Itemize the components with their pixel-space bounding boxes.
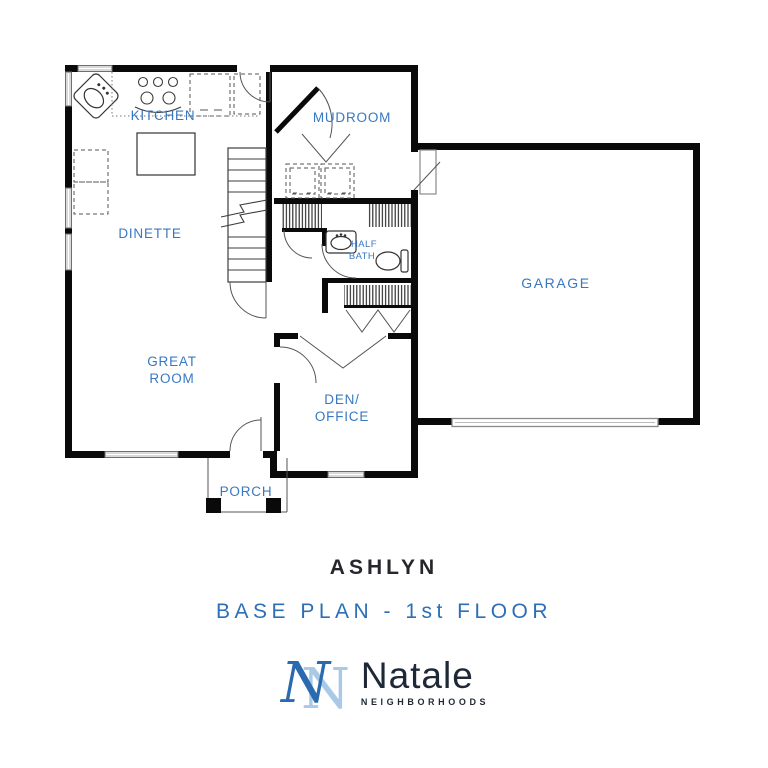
- monogram-dark-n: N: [279, 651, 332, 716]
- great-room-label-line2: ROOM: [149, 371, 194, 386]
- floor-plan: KITCHEN DINETTE MUDROOM HALF BATH GARAGE…: [0, 0, 768, 553]
- washer-dryer: [286, 164, 354, 198]
- brand-tagline: NEIGHBORHOODS: [361, 697, 489, 707]
- garage-door: [452, 419, 658, 427]
- dinette-label: DINETTE: [118, 226, 181, 241]
- logo-text: Natale NEIGHBORHOODS: [361, 657, 489, 707]
- half-bath-label-line2: BATH: [349, 251, 375, 262]
- den-office-label-line2: OFFICE: [315, 409, 369, 424]
- refrigerator: [190, 74, 230, 116]
- plan-name: ASHLYN: [0, 556, 768, 580]
- toilet: [376, 250, 408, 272]
- stairs: [221, 148, 267, 282]
- brand-logo: N N Natale NEIGHBORHOODS: [0, 644, 768, 720]
- brand-name: Natale: [361, 657, 489, 695]
- mudroom-label: MUDROOM: [313, 110, 391, 125]
- natale-monogram-icon: N N: [279, 644, 351, 720]
- great-room-label-line1: GREAT: [147, 354, 197, 369]
- kitchen-island: [137, 133, 195, 175]
- garage-label: GARAGE: [521, 275, 591, 291]
- half-bath-label-line1: HALF: [351, 239, 377, 250]
- pantry-shelf: [74, 150, 108, 182]
- exterior-walls: [65, 65, 700, 478]
- den-office-label-line1: DEN/: [324, 392, 359, 407]
- kitchen-label: KITCHEN: [131, 108, 196, 123]
- page: KITCHEN DINETTE MUDROOM HALF BATH GARAGE…: [0, 0, 768, 768]
- plan-subtitle: BASE PLAN - 1st FLOOR: [0, 600, 768, 624]
- porch-label: PORCH: [220, 484, 273, 499]
- dishwasher: [234, 74, 260, 114]
- porch-post: [266, 498, 281, 513]
- porch-post: [206, 498, 221, 513]
- footer: ASHLYN BASE PLAN - 1st FLOOR N N Natale …: [0, 556, 768, 720]
- floor-plan-svg: KITCHEN DINETTE MUDROOM HALF BATH GARAGE…: [0, 0, 768, 548]
- kitchen-sink: [72, 72, 120, 120]
- pantry-shelf: [74, 182, 108, 214]
